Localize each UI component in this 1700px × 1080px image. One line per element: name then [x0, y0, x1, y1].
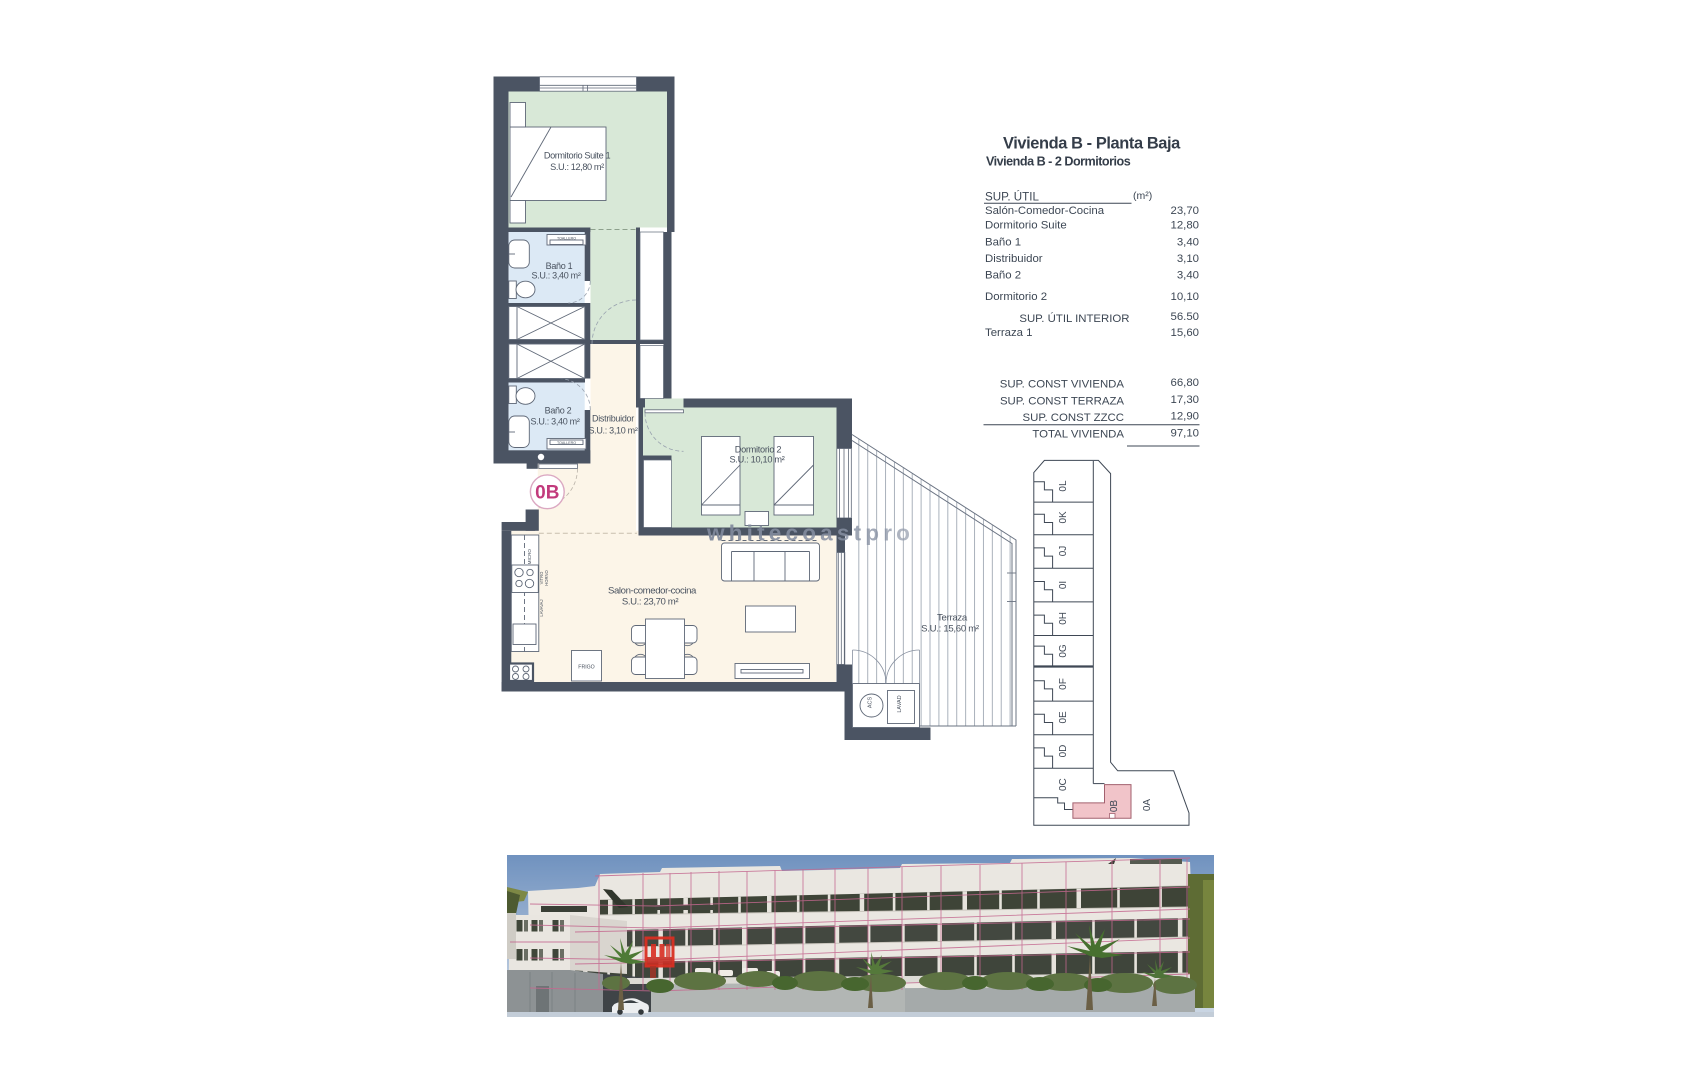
- svg-text:Baño 2: Baño 2: [985, 269, 1021, 281]
- svg-text:Terraza: Terraza: [937, 613, 968, 624]
- svg-text:97,10: 97,10: [1170, 428, 1199, 440]
- svg-text:0L: 0L: [1058, 480, 1069, 492]
- svg-text:HORNO: HORNO: [544, 569, 549, 585]
- svg-text:S.U.: 3,40 m²: S.U.: 3,40 m²: [531, 270, 580, 280]
- svg-text:17,30: 17,30: [1170, 394, 1199, 406]
- svg-text:0D: 0D: [1058, 745, 1069, 758]
- svg-text:S.U.: 3,10 m²: S.U.: 3,10 m²: [588, 425, 637, 435]
- svg-text:MICRO: MICRO: [527, 549, 532, 565]
- svg-text:0F: 0F: [1058, 678, 1069, 690]
- svg-text:LAVAD: LAVAD: [897, 695, 903, 712]
- svg-text:S.U.: 10,10 m²: S.U.: 10,10 m²: [729, 455, 784, 465]
- svg-text:0I: 0I: [1058, 581, 1069, 589]
- svg-text:3,40: 3,40: [1177, 237, 1199, 249]
- svg-text:SUP. CONST ZZCC: SUP. CONST ZZCC: [1023, 412, 1124, 424]
- svg-text:LAVAVAJ: LAVAVAJ: [539, 599, 544, 616]
- svg-text:Salon-comedor-cocina: Salon-comedor-cocina: [608, 586, 697, 597]
- svg-text:Dormitorio Suite 1: Dormitorio Suite 1: [544, 151, 611, 161]
- svg-text:0B: 0B: [535, 483, 559, 504]
- svg-text:56.50: 56.50: [1170, 311, 1199, 323]
- svg-text:0A: 0A: [1142, 799, 1153, 812]
- svg-text:S.U.: 3,40 m²: S.U.: 3,40 m²: [530, 417, 579, 427]
- svg-text:SUP. ÚTIL: SUP. ÚTIL: [985, 191, 1039, 204]
- svg-text:Salón-Comedor-Cocina: Salón-Comedor-Cocina: [985, 205, 1105, 217]
- svg-text:0J: 0J: [1058, 546, 1069, 557]
- svg-text:12,90: 12,90: [1170, 411, 1199, 423]
- svg-text:0G: 0G: [1058, 644, 1069, 658]
- svg-text:S.U.: 15,60 m²: S.U.: 15,60 m²: [921, 624, 980, 635]
- svg-text:SUP. ÚTIL INTERIOR: SUP. ÚTIL INTERIOR: [1019, 312, 1129, 325]
- svg-text:whitecoastpro: whitecoastpro: [706, 521, 914, 546]
- svg-text:3,40: 3,40: [1177, 269, 1199, 281]
- svg-text:SUP. CONST VIVIENDA: SUP. CONST VIVIENDA: [1000, 379, 1125, 391]
- svg-text:Terraza 1: Terraza 1: [985, 327, 1032, 339]
- svg-text:S.U.: 12,80 m²: S.U.: 12,80 m²: [550, 162, 604, 172]
- svg-text:ACS: ACS: [868, 697, 874, 709]
- svg-text:0B: 0B: [1109, 800, 1120, 813]
- svg-text:23,70: 23,70: [1170, 205, 1199, 217]
- svg-text:0E: 0E: [1058, 711, 1069, 724]
- svg-text:S.U.: 23,70 m²: S.U.: 23,70 m²: [622, 596, 679, 607]
- svg-text:SUP. CONST TERRAZA: SUP. CONST TERRAZA: [1000, 396, 1124, 408]
- svg-text:TOTAL VIVIENDA: TOTAL VIVIENDA: [1032, 429, 1124, 441]
- svg-text:(m²): (m²): [1133, 190, 1152, 202]
- svg-text:15,60: 15,60: [1170, 327, 1199, 339]
- svg-text:0H: 0H: [1058, 612, 1069, 625]
- svg-text:0K: 0K: [1058, 511, 1069, 524]
- svg-text:66,80: 66,80: [1170, 377, 1199, 389]
- svg-text:FRIGO: FRIGO: [578, 665, 594, 671]
- svg-text:Dormitorio 2: Dormitorio 2: [735, 445, 782, 455]
- svg-text:Dormitorio Suite: Dormitorio Suite: [985, 220, 1067, 232]
- svg-text:Distribuidor: Distribuidor: [985, 253, 1043, 265]
- svg-text:0C: 0C: [1058, 778, 1069, 791]
- svg-text:Distribuidor: Distribuidor: [592, 414, 634, 424]
- svg-text:3,10: 3,10: [1177, 253, 1199, 265]
- svg-text:12,80: 12,80: [1170, 220, 1199, 232]
- svg-text:Baño 2: Baño 2: [545, 406, 572, 416]
- svg-text:Dormitorio 2: Dormitorio 2: [985, 291, 1047, 303]
- svg-text:Baño 1: Baño 1: [985, 237, 1021, 249]
- svg-text:Vivienda B - 2 Dormitorios: Vivienda B - 2 Dormitorios: [986, 155, 1131, 169]
- svg-text:Vivienda B - Planta Baja: Vivienda B - Planta Baja: [1003, 135, 1181, 153]
- svg-text:10,10: 10,10: [1170, 291, 1199, 303]
- svg-text:TOALLERO: TOALLERO: [557, 237, 576, 241]
- svg-text:TOALLERO: TOALLERO: [557, 441, 576, 445]
